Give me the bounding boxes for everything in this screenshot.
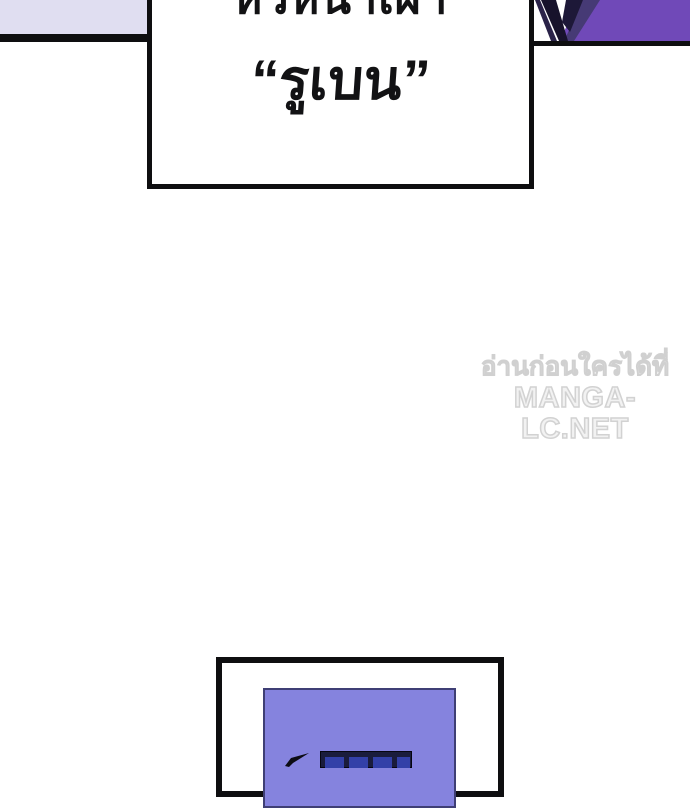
panel-border-left <box>0 34 152 42</box>
window-pane <box>325 757 344 768</box>
manga-page: { "colors": { "lavender-panel": "#e0def1… <box>0 0 690 767</box>
building-wall <box>263 688 456 808</box>
speech-line-title: หัวหน้าเผ่า <box>152 0 529 23</box>
bird-silhouette <box>285 753 309 767</box>
watermark: อ่านก่อนใครได้ที่ MANGA-LC.NET <box>468 350 682 446</box>
window-graphic <box>320 751 412 768</box>
window-pane <box>373 757 392 768</box>
panel-border-right <box>534 41 690 46</box>
window-pane <box>349 757 368 768</box>
window-pane <box>397 757 410 768</box>
bird-icon <box>283 753 309 767</box>
previous-panel-sky <box>0 0 147 34</box>
watermark-site-name: MANGA-LC.NET <box>468 383 682 447</box>
character-hair-artwork <box>534 0 690 46</box>
speech-line-name: “รูเบน” <box>150 46 532 113</box>
watermark-thai-line: อ่านก่อนใครได้ที่ <box>468 350 682 383</box>
